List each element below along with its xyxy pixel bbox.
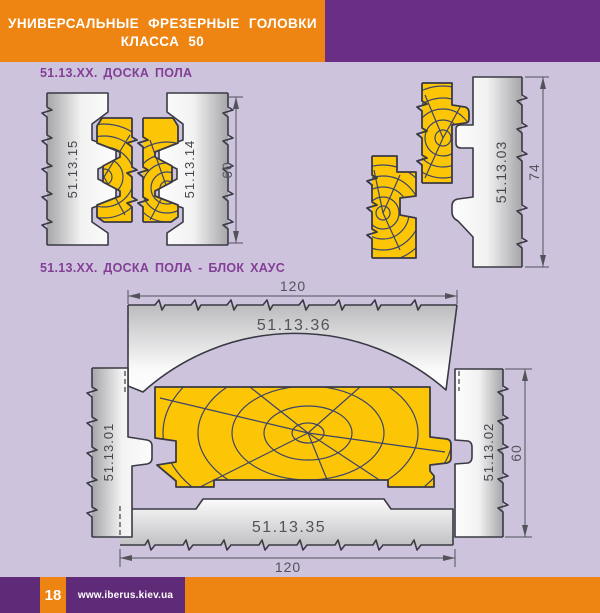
left-cutter-label: 51.13.15 [65,140,80,199]
side-height-dimension-label: 74 [526,163,542,181]
side-cutter-label: 51.13.03 [493,141,509,204]
bottom-cutter-label: 51.13.35 [252,519,326,536]
technical-drawings: 51.13.15 51.13.14 60 [0,0,600,613]
footer-purple-spacer [0,577,40,613]
top-cutter-label: 51.13.36 [257,317,331,334]
floor-board-side-drawing: 51.13.03 74 [335,77,549,267]
footer-orange-bar [185,577,600,613]
right-height-dimension-60: 60 [505,369,532,537]
left-side-cutter-label: 51.13.01 [101,423,116,482]
bottom-width-dimension-120: 120 [120,549,455,575]
side-cutter-body [452,77,522,267]
right-cutter-label: 51.13.14 [182,140,197,199]
top-width-dimension-120: 120 [128,278,457,304]
bottom-width-dimension-label: 120 [275,559,301,575]
right-height-dimension-label: 60 [508,444,524,462]
right-side-cutter-label: 51.13.02 [481,423,496,482]
block-house-drawing: 51.13.36 51.13.35 51.13.01 51.13.02 120 … [87,278,532,575]
top-width-dimension-label: 120 [280,278,306,294]
page-number: 18 [40,577,66,613]
page-footer: 18 www.iberus.kiev.ua [0,577,600,613]
catalog-page: УНИВЕРСАЛЬНЫЕ ФРЕЗЕРНЫЕ ГОЛОВКИ КЛАССА 5… [0,0,600,613]
floor-board-pair-drawing: 51.13.15 51.13.14 60 [42,93,243,245]
site-url: www.iberus.kiev.ua [66,577,185,613]
height-dimension-label: 60 [219,161,235,179]
height-dimension-74: 74 [525,77,549,267]
